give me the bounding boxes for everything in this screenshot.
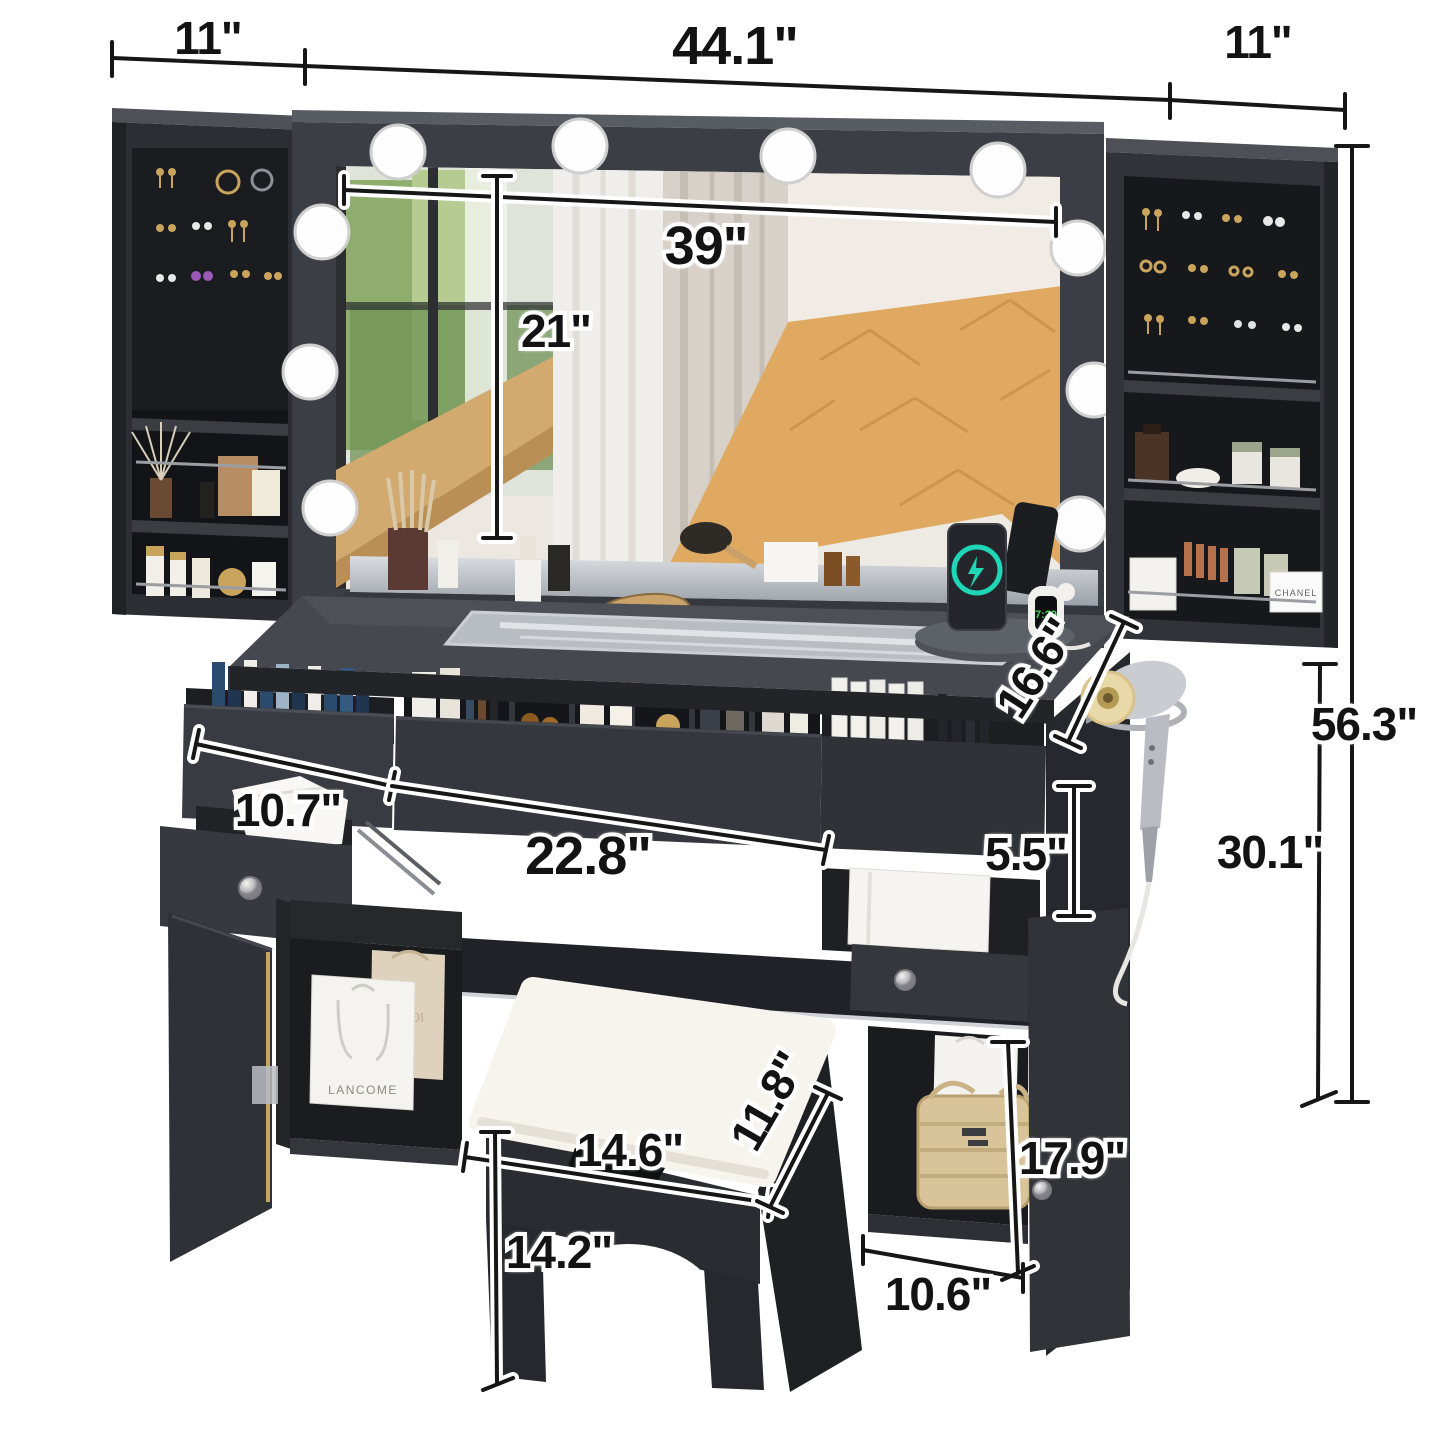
lancome-shopping-bag: LANCOME xyxy=(310,975,415,1110)
dim-label-mirror-width: 39" xyxy=(665,215,748,277)
dim-label-left-cabinet-width: 11" xyxy=(174,11,241,65)
dim-label-left-drawer-width: 10.7" xyxy=(235,783,341,837)
dim-label-overall-height: 56.3" xyxy=(1311,697,1417,751)
dim-label-overall-width: 44.1" xyxy=(672,15,798,77)
product-dimension-diagram: CHANEL xyxy=(0,0,1445,1445)
left-cabinet-door-open xyxy=(168,912,278,1262)
dim-label-right-cabinet-width: 11" xyxy=(1224,15,1291,69)
dim-label-side-cubby-width: 10.6" xyxy=(885,1267,991,1321)
chanel-box-label: CHANEL xyxy=(1275,588,1318,598)
dim-label-mirror-height: 21" xyxy=(521,304,591,358)
drawer-knob xyxy=(239,877,261,899)
dim-line-overall-height xyxy=(1336,146,1368,1102)
drawer-knob xyxy=(895,970,915,990)
dim-label-middle-drawer-width: 22.8" xyxy=(525,825,651,887)
dim-label-side-drawer-height: 5.5" xyxy=(985,827,1067,881)
dim-label-stool-height: 14.2" xyxy=(506,1225,612,1279)
left-pedestal: KOI LANCOME xyxy=(160,776,462,1262)
lancome-bag-label: LANCOME xyxy=(328,1083,398,1097)
dim-label-side-cubby-height: 17.9" xyxy=(1019,1131,1125,1185)
dim-label-desktop-height: 30.1" xyxy=(1217,825,1323,879)
right-jewelry-cabinet: CHANEL xyxy=(1106,138,1338,648)
dim-line-right-cabinet-width xyxy=(1170,94,1345,128)
right-cabinet-door xyxy=(1028,908,1130,1352)
right-pulled-drawer xyxy=(822,868,1040,1022)
dim-label-stool-width: 14.6" xyxy=(577,1123,683,1177)
left-jewelry-cabinet xyxy=(112,108,305,622)
